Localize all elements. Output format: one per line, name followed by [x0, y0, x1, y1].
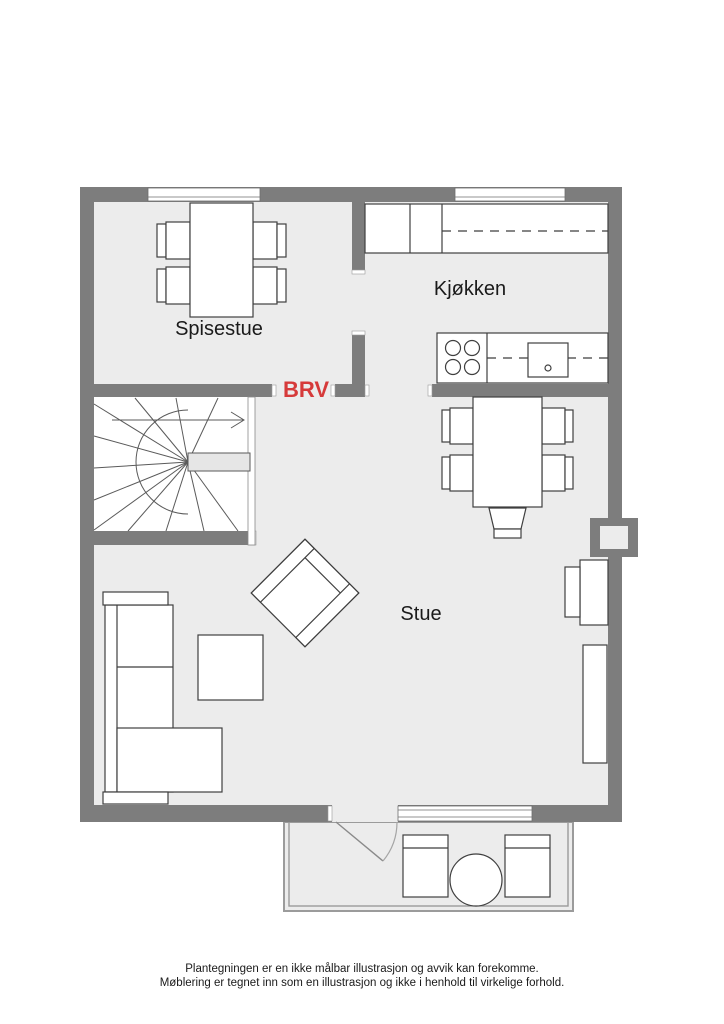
chair	[489, 508, 526, 538]
chair	[542, 455, 565, 491]
floorplan-page: Spisestue Kjøkken Stue BRV Plantegningen…	[0, 0, 724, 1024]
disclaimer: Plantegningen er en ikke målbar illustra…	[160, 963, 565, 989]
room-label-spisestue: Spisestue	[175, 318, 263, 340]
stair-wall	[94, 531, 250, 545]
chair	[166, 222, 190, 259]
staircase	[94, 397, 256, 545]
chair	[253, 222, 277, 259]
sink-icon	[528, 343, 568, 377]
window-kjokken	[455, 188, 565, 201]
sofa-armrest	[103, 592, 168, 605]
sofa-chaise	[117, 728, 222, 792]
tv-bench	[565, 560, 608, 625]
disclaimer-line-1: Plantegningen er en ikke målbar illustra…	[185, 963, 539, 975]
floorplan-drawing: Spisestue Kjøkken Stue BRV Plantegningen…	[0, 0, 724, 1024]
room-label-kjokken: Kjøkken	[434, 278, 506, 300]
chair	[277, 224, 286, 257]
balcony-window	[398, 806, 532, 821]
right-wall	[608, 187, 622, 822]
disclaimer-line-2: Møblering er tegnet inn som en illustras…	[160, 977, 565, 989]
sideboard	[583, 645, 607, 763]
balcony-chair	[403, 835, 448, 897]
chair	[157, 269, 166, 302]
dining-table	[473, 397, 542, 507]
chair	[565, 457, 573, 489]
interior-wall-horizontal	[94, 384, 608, 397]
stair-rail	[188, 453, 250, 471]
chair	[166, 267, 190, 304]
kitchen-counter-bottom	[437, 333, 608, 383]
balcony-chair	[505, 835, 550, 897]
brv-label: BRV	[283, 377, 329, 402]
chair	[442, 457, 450, 489]
chair	[157, 224, 166, 257]
room-label-stue: Stue	[400, 603, 441, 625]
window-spisestue	[148, 188, 260, 201]
coffee-table	[198, 635, 263, 700]
chair	[450, 408, 473, 444]
chair	[442, 410, 450, 442]
chair	[565, 410, 573, 442]
chimney	[590, 518, 638, 557]
sofa-armrest	[103, 792, 168, 804]
chair	[277, 269, 286, 302]
dining-table	[190, 203, 253, 317]
kitchen-counter-top	[365, 204, 608, 253]
left-wall	[80, 187, 94, 822]
chair	[450, 455, 473, 491]
chair	[542, 408, 565, 444]
round-table	[450, 854, 502, 906]
chair	[253, 267, 277, 304]
